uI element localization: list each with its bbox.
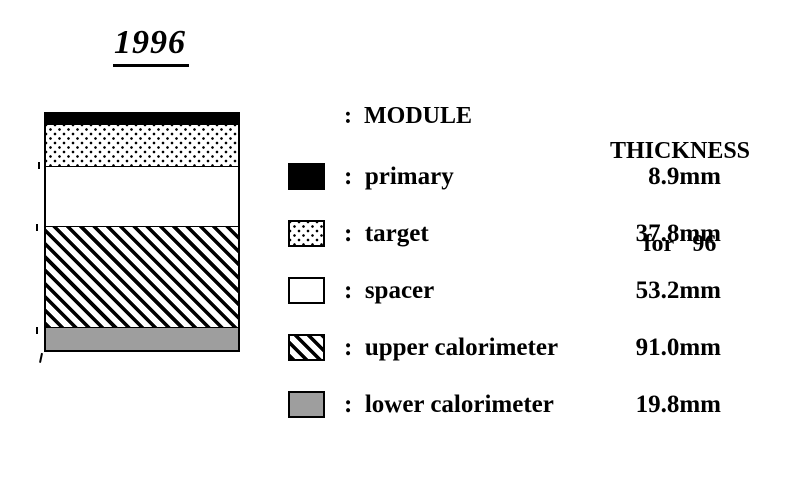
thickness-value-lower-calorimeter: 19.8mm [636, 391, 721, 419]
axis-tick-artifact [36, 327, 38, 334]
figure-title: 1996 [113, 24, 189, 67]
stack-layer-spacer [46, 166, 238, 226]
legend-row-lower-calorimeter: : lower calorimeter 19.8mm [288, 376, 785, 433]
axis-tick-artifact [38, 162, 40, 169]
stack-layer-lower-calorimeter [46, 327, 238, 350]
axis-tick-artifact [36, 224, 38, 231]
legend-label-lower-calorimeter: : lower calorimeter [344, 391, 554, 419]
legend-row-primary: : primary 8.9mm [288, 148, 785, 205]
module-column-header: : MODULE [344, 103, 472, 130]
stack-layer-target [46, 124, 238, 167]
stack-layer-upper-calorimeter [46, 226, 238, 327]
axis-tick-artifact [39, 353, 43, 363]
spacer-swatch [288, 277, 325, 304]
module-thickness-figure: 1996 : MODULE THICKNESS for '96 : primar… [0, 0, 785, 493]
lower-calorimeter-swatch [288, 391, 325, 418]
stack-layer-primary [46, 114, 238, 124]
legend-label-primary: : primary [344, 163, 454, 191]
legend: : primary 8.9mm : target 37.8mm : spacer… [288, 148, 785, 433]
target-swatch [288, 220, 325, 247]
thickness-value-target: 37.8mm [636, 220, 721, 248]
thickness-value-upper-calorimeter: 91.0mm [636, 334, 721, 362]
legend-row-upper-calorimeter: : upper calorimeter 91.0mm [288, 319, 785, 376]
legend-row-target: : target 37.8mm [288, 205, 785, 262]
thickness-value-spacer: 53.2mm [636, 277, 721, 305]
primary-swatch [288, 163, 325, 190]
legend-label-upper-calorimeter: : upper calorimeter [344, 334, 558, 362]
legend-label-spacer: : spacer [344, 277, 434, 305]
upper-calorimeter-swatch [288, 334, 325, 361]
legend-row-spacer: : spacer 53.2mm [288, 262, 785, 319]
module-stack-diagram [44, 112, 240, 352]
legend-label-target: : target [344, 220, 429, 248]
thickness-value-primary: 8.9mm [648, 163, 721, 191]
